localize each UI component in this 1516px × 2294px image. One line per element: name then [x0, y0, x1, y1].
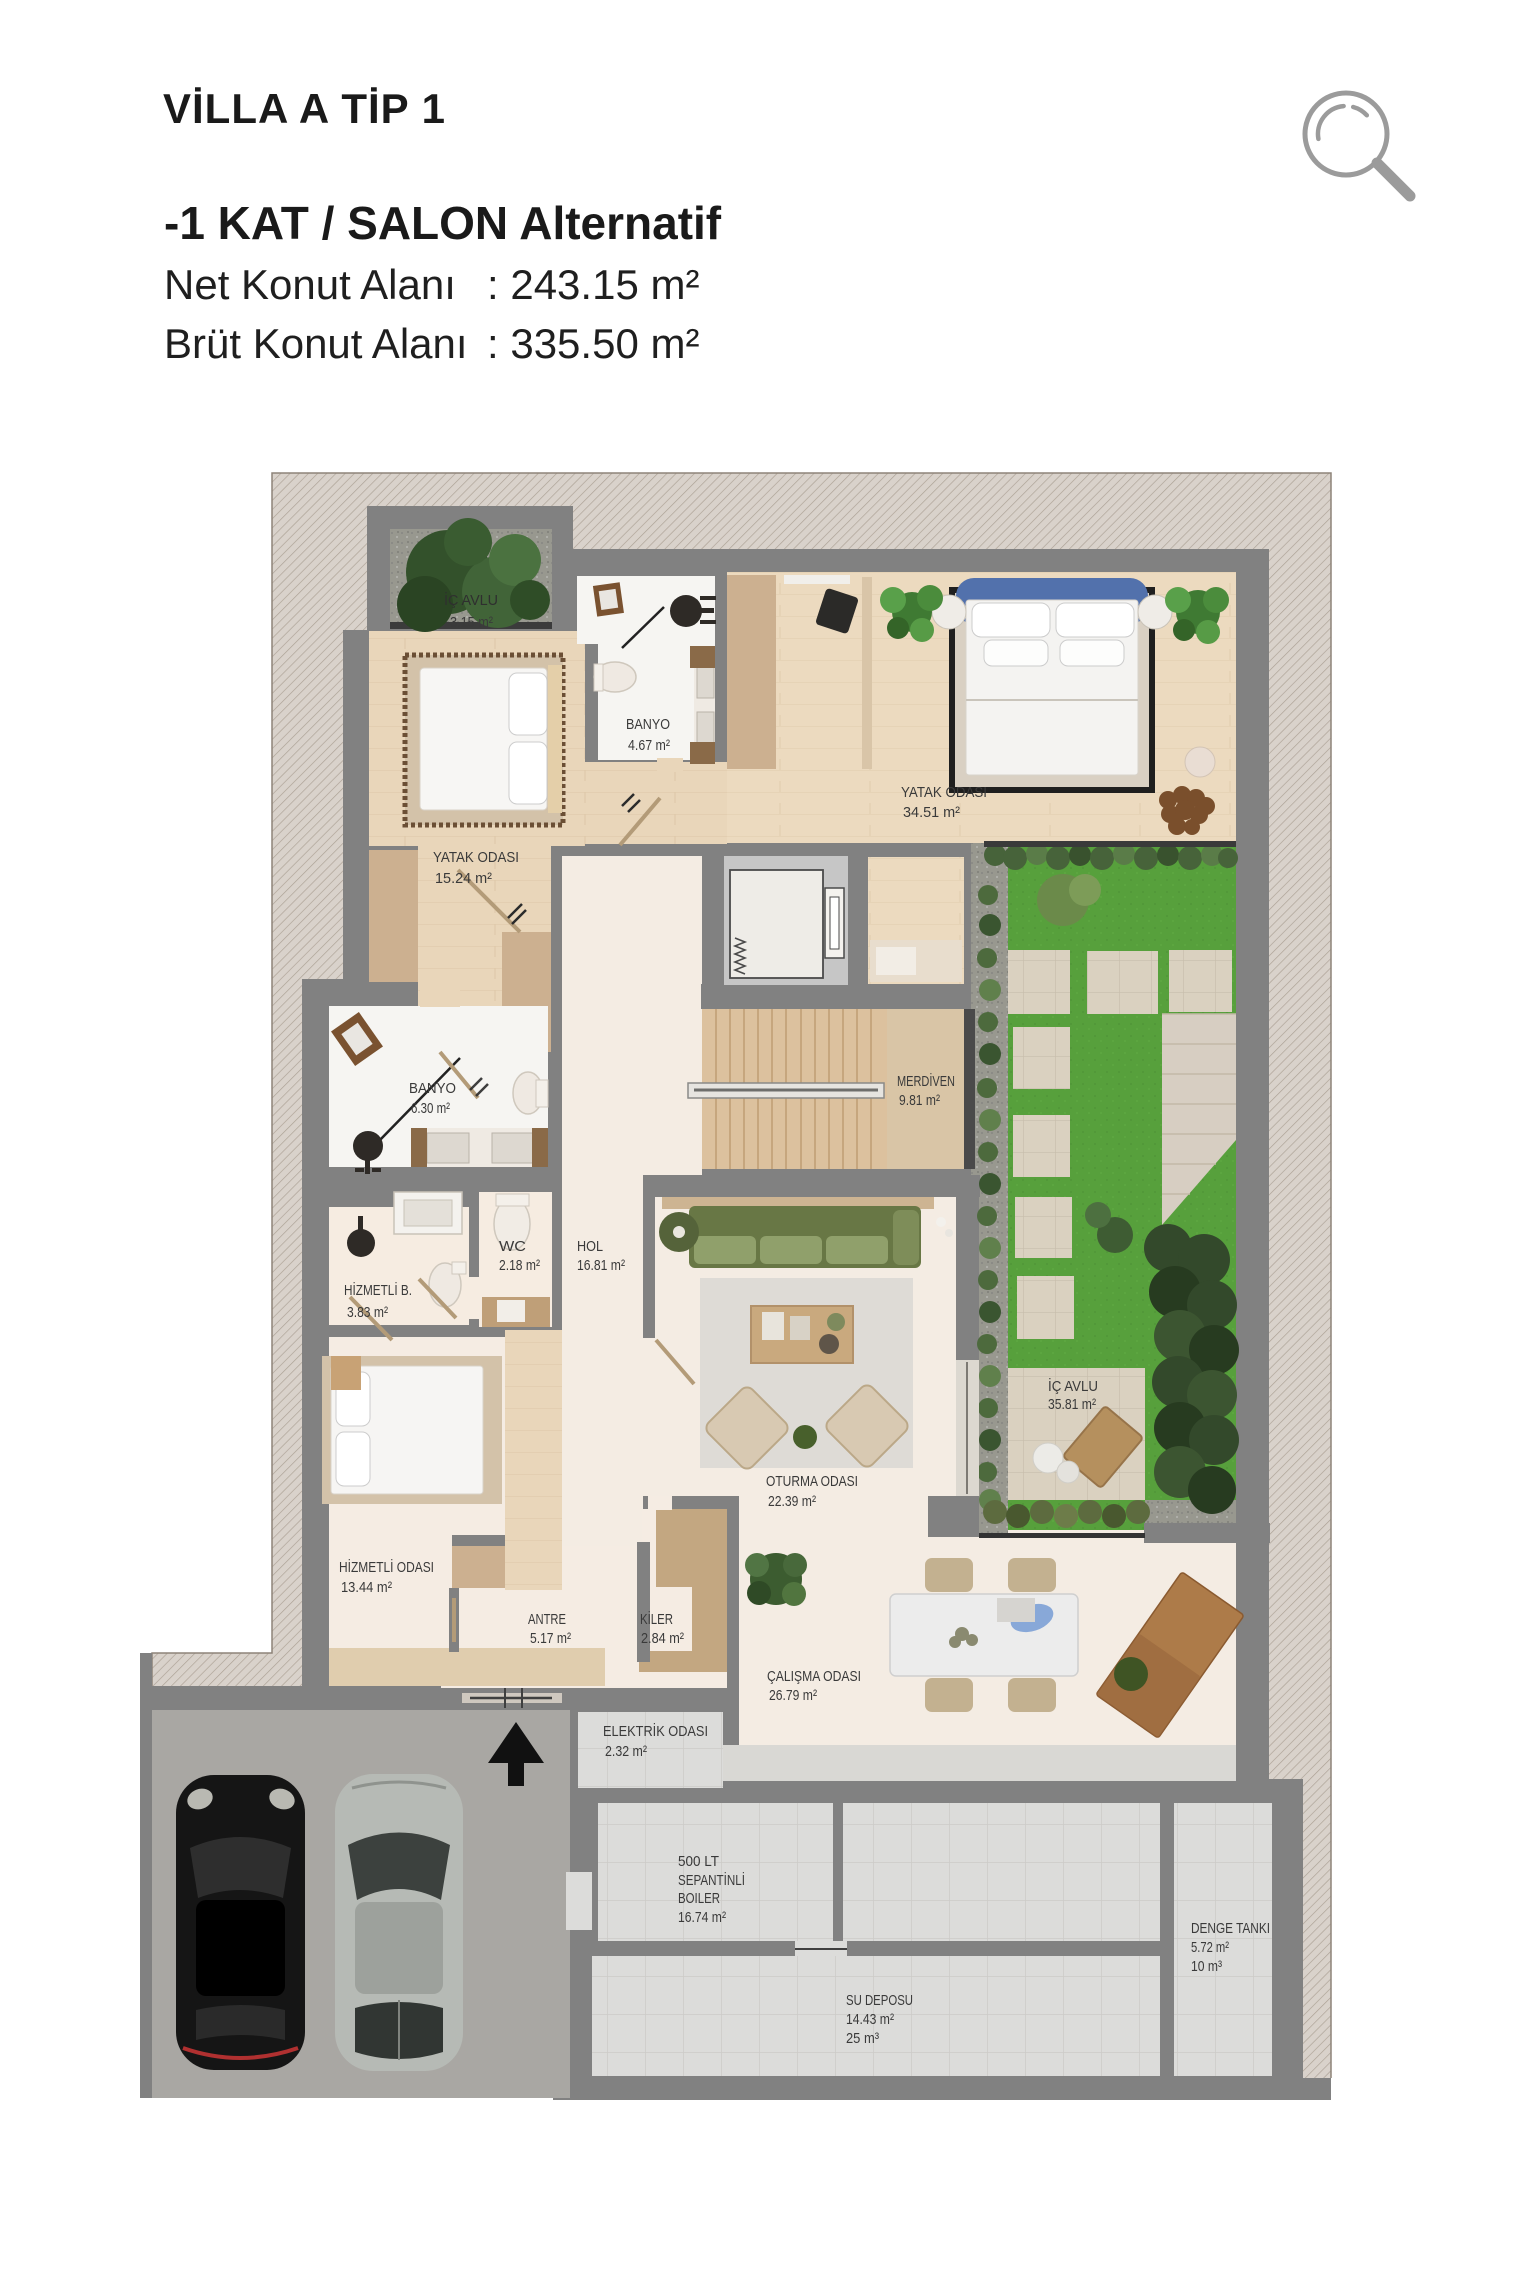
svg-text:5.72 m²: 5.72 m²: [1191, 1939, 1229, 1956]
svg-text:22.39 m²: 22.39 m²: [768, 1493, 816, 1510]
svg-text:YATAK ODASI: YATAK ODASI: [433, 849, 519, 866]
svg-text:-1 KAT / SALON Alternatif: -1 KAT / SALON Alternatif: [164, 197, 722, 249]
svg-text:34.51 m²: 34.51 m²: [903, 804, 960, 821]
svg-text:MERDİVEN: MERDİVEN: [897, 1072, 955, 1090]
svg-text:Brüt Konut Alanı: Brüt Konut Alanı: [164, 320, 468, 367]
svg-text:2.84 m²: 2.84 m²: [641, 1630, 684, 1647]
svg-text:: 335.50 m²: : 335.50 m²: [487, 320, 699, 367]
svg-text:2.18 m²: 2.18 m²: [499, 1257, 540, 1274]
svg-text:BOILER: BOILER: [678, 1890, 720, 1907]
svg-text:İÇ AVLU: İÇ AVLU: [444, 591, 498, 609]
svg-text:ÇALIŞMA ODASI: ÇALIŞMA ODASI: [767, 1668, 861, 1685]
svg-text:ELEKTRİK ODASI: ELEKTRİK ODASI: [603, 1722, 708, 1740]
svg-text:ANTRE: ANTRE: [528, 1611, 566, 1628]
svg-text:: 243.15 m²: : 243.15 m²: [487, 261, 699, 308]
svg-text:16.74 m²: 16.74 m²: [678, 1909, 726, 1926]
svg-text:2.32 m²: 2.32 m²: [605, 1743, 647, 1760]
svg-text:HOL: HOL: [577, 1238, 603, 1255]
svg-text:9.81 m²: 9.81 m²: [899, 1092, 940, 1109]
svg-text:SU DEPOSU: SU DEPOSU: [846, 1992, 913, 2009]
svg-text:İÇ AVLU: İÇ AVLU: [1048, 1377, 1098, 1395]
svg-text:Net Konut Alanı: Net Konut Alanı: [164, 261, 456, 308]
svg-text:3.83 m²: 3.83 m²: [347, 1304, 388, 1321]
svg-text:15.24 m²: 15.24 m²: [435, 870, 492, 887]
svg-text:25 m³: 25 m³: [846, 2030, 879, 2047]
svg-text:BANYO: BANYO: [626, 716, 670, 733]
svg-text:SEPANTİNLİ: SEPANTİNLİ: [678, 1871, 745, 1889]
svg-text:5.17 m²: 5.17 m²: [530, 1630, 571, 1647]
svg-text:DENGE TANKI: DENGE TANKI: [1191, 1920, 1270, 1937]
svg-text:HİZMETLİ ODASI: HİZMETLİ ODASI: [339, 1558, 434, 1576]
svg-text:35.81 m²: 35.81 m²: [1048, 1396, 1096, 1413]
svg-text:26.79 m²: 26.79 m²: [769, 1687, 817, 1704]
svg-text:3.15 m²: 3.15 m²: [450, 614, 493, 631]
svg-text:4.67 m²: 4.67 m²: [628, 737, 670, 754]
svg-text:WC: WC: [499, 1238, 526, 1255]
svg-text:OTURMA ODASI: OTURMA ODASI: [766, 1473, 858, 1490]
svg-text:500 LT: 500 LT: [678, 1853, 719, 1870]
svg-text:HİZMETLİ B.: HİZMETLİ B.: [344, 1281, 412, 1299]
svg-text:6.30 m²: 6.30 m²: [411, 1100, 450, 1117]
svg-text:13.44 m²: 13.44 m²: [341, 1579, 392, 1596]
svg-text:VİLLA A TİP 1: VİLLA A TİP 1: [163, 85, 446, 132]
svg-text:14.43 m²: 14.43 m²: [846, 2011, 894, 2028]
svg-text:YATAK ODASI: YATAK ODASI: [901, 784, 987, 801]
svg-text:BANYO: BANYO: [409, 1080, 456, 1097]
svg-text:16.81 m²: 16.81 m²: [577, 1257, 625, 1274]
svg-text:10 m³: 10 m³: [1191, 1958, 1222, 1975]
svg-text:KİLER: KİLER: [640, 1610, 673, 1628]
